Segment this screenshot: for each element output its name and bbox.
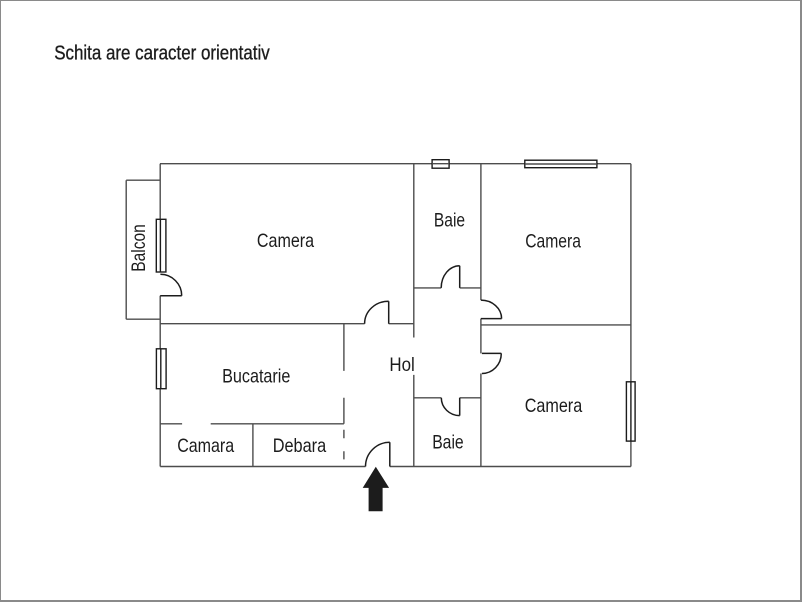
svg-text:Camera: Camera	[257, 230, 314, 252]
svg-text:Camara: Camara	[177, 435, 234, 457]
svg-text:Camera: Camera	[525, 231, 581, 253]
svg-text:Debara: Debara	[273, 435, 327, 457]
svg-text:Balcon: Balcon	[128, 224, 150, 272]
svg-text:Schita are caracter orientativ: Schita are caracter orientativ	[54, 42, 270, 65]
svg-text:Baie: Baie	[432, 432, 464, 454]
svg-text:Camera: Camera	[525, 395, 583, 417]
svg-text:Bucatarie: Bucatarie	[222, 365, 290, 387]
svg-text:Baie: Baie	[434, 210, 465, 232]
svg-text:Hol: Hol	[389, 354, 414, 376]
